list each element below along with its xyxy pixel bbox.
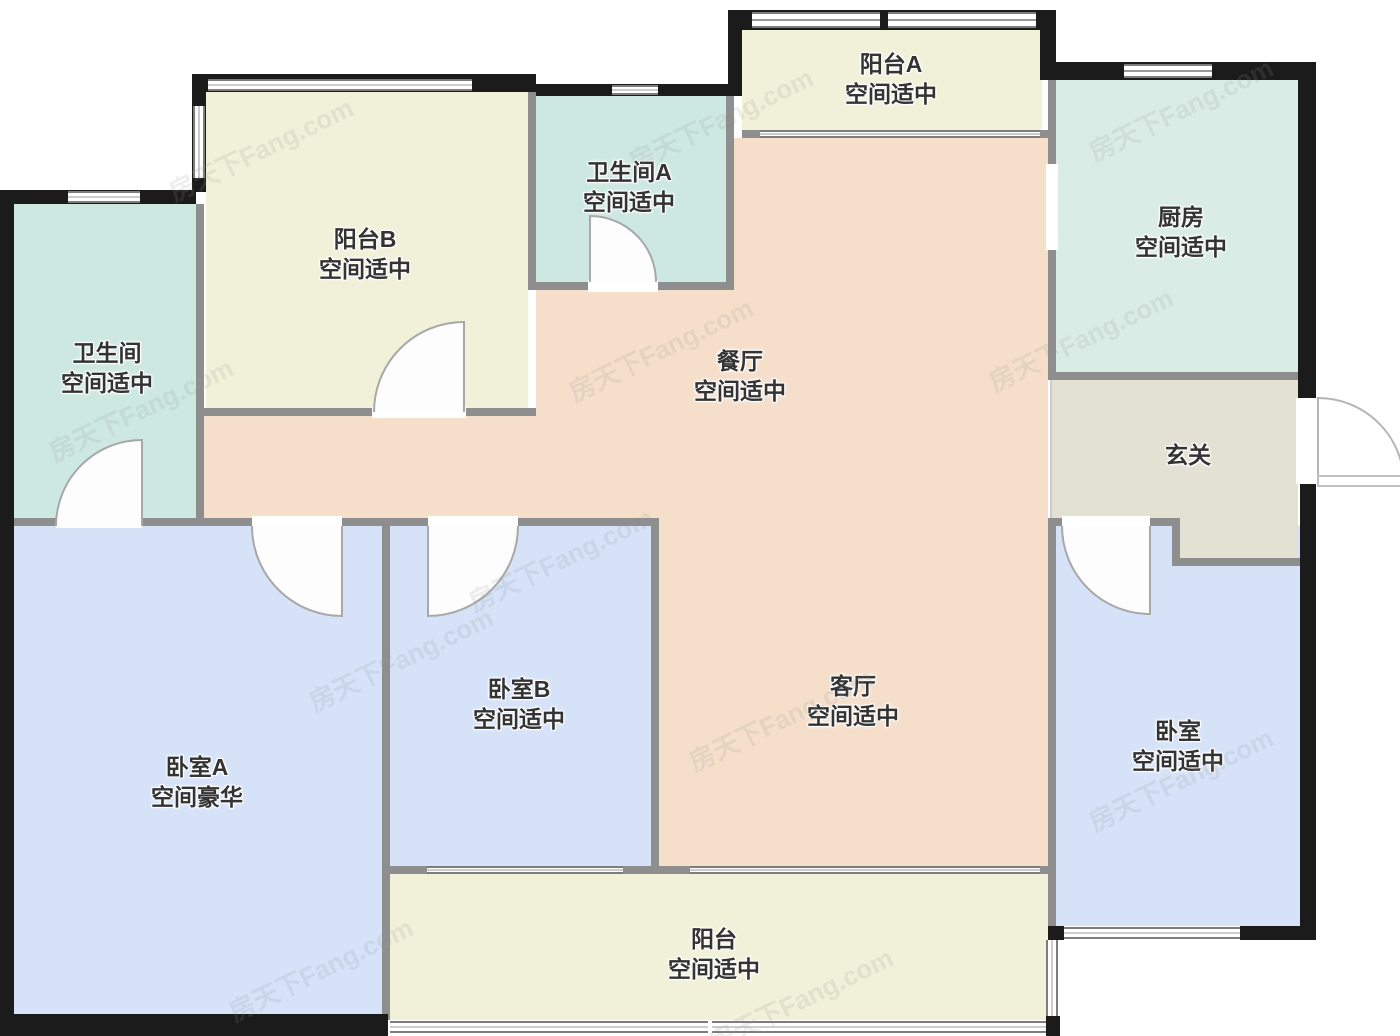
wall-segment: [528, 92, 536, 290]
wall-exterior: [1240, 926, 1316, 940]
room-label-bathroom: 卫生间 空间适中: [61, 339, 153, 399]
room-name: 卫生间A: [583, 158, 675, 188]
room-status: 空间适中: [668, 955, 760, 985]
door-opening: [372, 406, 466, 418]
window: [193, 106, 205, 178]
wall-exterior: [1298, 62, 1316, 398]
window: [612, 85, 658, 95]
room-name: 客厅: [807, 672, 899, 702]
room-label-balcony: 阳台 空间适中: [668, 925, 760, 985]
room-name: 餐厅: [694, 347, 786, 377]
room-status: 空间适中: [807, 702, 899, 732]
room-name: 玄关: [1165, 441, 1211, 471]
wall-exterior: [1040, 10, 1056, 80]
wall-segment: [651, 518, 659, 874]
room-hallway-step: [1180, 518, 1298, 558]
window: [390, 1021, 708, 1033]
room-status: 空间适中: [694, 377, 786, 407]
window-sliding: [427, 866, 623, 874]
door-opening: [588, 280, 658, 292]
wall-exterior: [1048, 926, 1064, 940]
room-name: 阳台A: [845, 50, 937, 80]
door-opening: [1062, 516, 1150, 528]
room-dining: [204, 416, 1048, 518]
wall-segment: [196, 408, 536, 416]
wall-exterior: [1046, 1016, 1060, 1036]
window: [208, 79, 472, 91]
room-label-kitchen: 厨房 空间适中: [1135, 203, 1227, 263]
wall-segment: [1048, 372, 1304, 380]
door-opening: [428, 516, 518, 528]
room-label-balcony-b: 阳台B 空间适中: [319, 225, 411, 285]
room-status: 空间适中: [1132, 747, 1224, 777]
room-label-bedroom-b: 卧室B 空间适中: [473, 675, 565, 735]
window: [712, 1021, 1046, 1033]
room-name: 阳台: [668, 925, 760, 955]
wall-exterior: [0, 190, 14, 1036]
door-panel-entrance: [1318, 476, 1400, 486]
floor-boundary: [1050, 380, 1052, 518]
door-opening-kitchen: [1046, 164, 1058, 250]
door-opening: [252, 516, 342, 528]
wall-segment: [382, 518, 390, 1020]
wall-exterior: [0, 1014, 388, 1036]
room-status: 空间适中: [473, 705, 565, 735]
room-name: 卧室B: [473, 675, 565, 705]
window: [1064, 927, 1240, 939]
window: [888, 12, 1036, 28]
door-arc-entrance: [1318, 398, 1400, 484]
room-name: 卧室: [1132, 717, 1224, 747]
wall-segment: [1172, 558, 1304, 566]
room-label-living: 客厅 空间适中: [807, 672, 899, 732]
room-label-dining: 餐厅 空间适中: [694, 347, 786, 407]
room-label-bathroom-a: 卫生间A 空间适中: [583, 158, 675, 218]
room-label-bedroom-a: 卧室A 空间豪华: [151, 753, 243, 813]
room-status: 空间适中: [583, 188, 675, 218]
window: [752, 12, 880, 28]
room-name: 阳台B: [319, 225, 411, 255]
room-status: 空间适中: [319, 255, 411, 285]
window: [1124, 64, 1212, 78]
room-name: 卫生间: [61, 339, 153, 369]
room-status: 空间适中: [1135, 233, 1227, 263]
wall-segment: [196, 204, 204, 526]
room-status: 空间豪华: [151, 783, 243, 813]
window-sliding: [690, 866, 1040, 874]
door-opening: [56, 516, 142, 528]
room-status: 空间适中: [845, 80, 937, 110]
window: [68, 191, 140, 203]
door-opening-entrance: [1296, 398, 1318, 484]
room-name: 厨房: [1135, 203, 1227, 233]
room-name: 卧室A: [151, 753, 243, 783]
room-label-hallway: 玄关: [1165, 441, 1211, 471]
room-label-bedroom: 卧室 空间适中: [1132, 717, 1224, 777]
room-label-balcony-a: 阳台A 空间适中: [845, 50, 937, 110]
floor-plan: 阳台A 空间适中 卫生间A 空间适中 阳台B 空间适中 厨房 空间适中 卫生间 …: [0, 0, 1400, 1036]
wall-segment: [1048, 518, 1056, 940]
room-status: 空间适中: [61, 369, 153, 399]
wall-exterior: [1300, 484, 1316, 940]
window: [1046, 940, 1058, 1016]
wall-segment: [726, 92, 734, 290]
window-sliding: [760, 130, 1040, 138]
